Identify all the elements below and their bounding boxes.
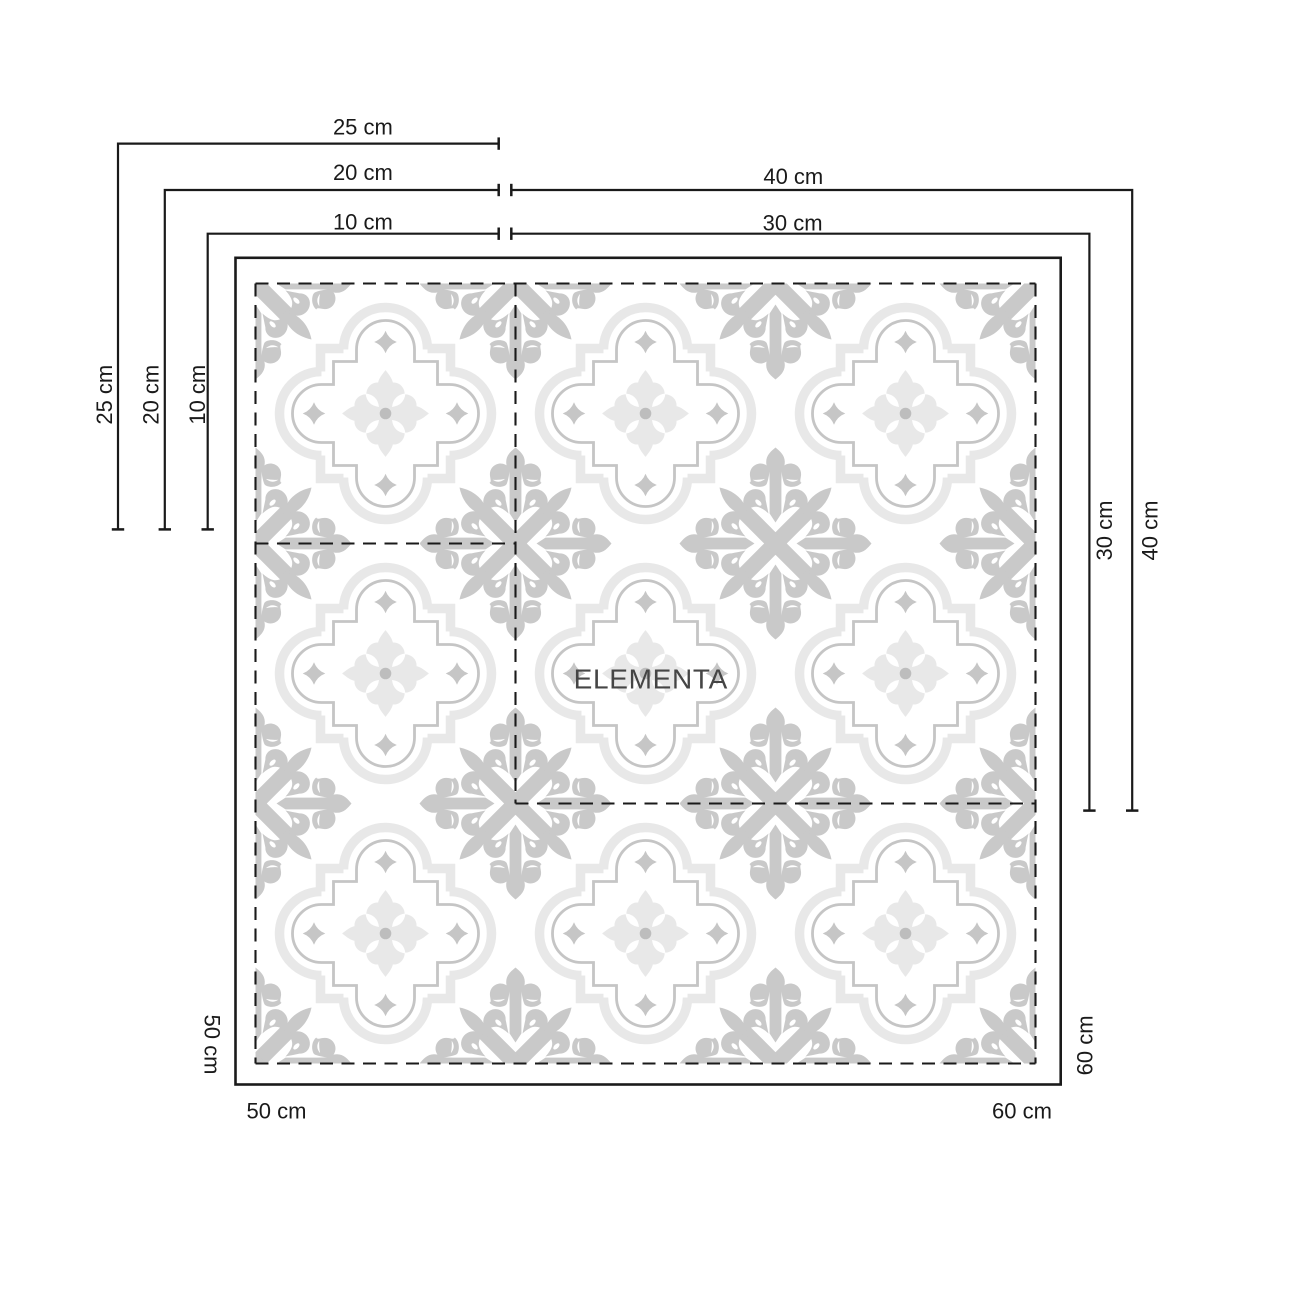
- svg-text:25 cm: 25 cm: [92, 365, 117, 425]
- svg-text:10 cm: 10 cm: [185, 365, 210, 425]
- svg-text:30 cm: 30 cm: [763, 211, 823, 236]
- svg-text:20 cm: 20 cm: [333, 160, 393, 185]
- svg-text:ELEMENTA: ELEMENTA: [574, 664, 728, 695]
- svg-text:25 cm: 25 cm: [333, 115, 393, 140]
- svg-text:40 cm: 40 cm: [763, 164, 823, 189]
- svg-text:60 cm: 60 cm: [1073, 1015, 1098, 1075]
- svg-text:20 cm: 20 cm: [139, 365, 164, 425]
- svg-text:60 cm: 60 cm: [992, 1099, 1052, 1124]
- svg-text:30 cm: 30 cm: [1092, 501, 1117, 561]
- svg-text:50 cm: 50 cm: [247, 1099, 307, 1124]
- svg-text:10 cm: 10 cm: [333, 210, 393, 235]
- svg-text:50 cm: 50 cm: [200, 1015, 225, 1075]
- svg-text:40 cm: 40 cm: [1137, 501, 1162, 561]
